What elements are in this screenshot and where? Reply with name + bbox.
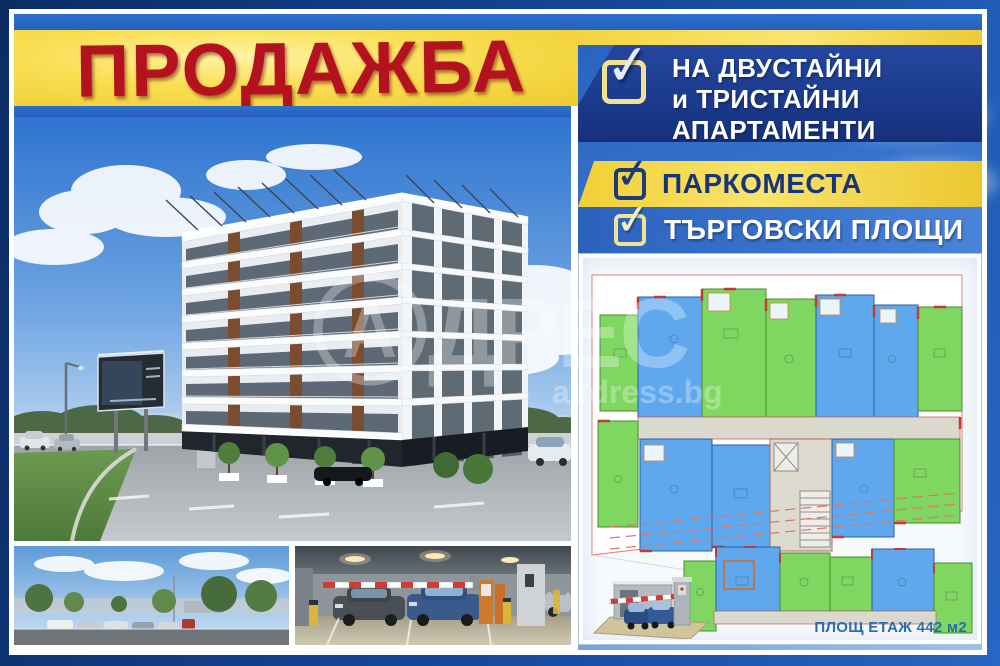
floor-plan-drawing	[584, 259, 976, 639]
check-icon: ✓	[613, 161, 653, 200]
payment-pillar	[479, 580, 505, 624]
checkbox-icon: ✓	[602, 60, 646, 104]
garage-photo	[295, 546, 571, 645]
sale-banner-underline-strip	[14, 106, 571, 117]
poster-canvas: ПРОДАЖБА	[9, 9, 987, 655]
sale-banner: ПРОДАЖБА	[14, 30, 578, 106]
sale-banner-title: ПРОДАЖБА	[14, 27, 579, 112]
feature-banner-commercial: ✓ ТЪРГОВСКИ ПЛОЩИ	[578, 207, 982, 253]
check-icon: ✓	[613, 207, 653, 246]
feature-commercial-label: ТЪРГОВСКИ ПЛОЩИ	[664, 214, 964, 246]
checkbox-icon: ✓	[614, 168, 646, 200]
check-icon: ✓	[602, 45, 655, 99]
floor-plan-panel: ПЛОЩ ЕТАЖ 442 м2	[578, 253, 982, 645]
building-photo-art	[14, 117, 571, 541]
checkbox-icon: ✓	[614, 214, 646, 246]
real-estate-poster: ПРОДАЖБА	[0, 0, 1000, 666]
street-photo-art	[14, 546, 289, 645]
feature-banner-parking: ✓ ПАРКОМЕСТА	[578, 161, 982, 207]
feature-banner-apartments: ✓ НА ДВУСТАЙНИ и ТРИСТАЙНИ АПАРТАМЕНТИ	[578, 45, 982, 142]
garage-photo-art	[295, 546, 571, 645]
street-photo	[14, 546, 289, 645]
floor-area-label: ПЛОЩ ЕТАЖ 442 м2	[814, 619, 967, 636]
feature-parking-label: ПАРКОМЕСТА	[662, 168, 862, 200]
feature-apartments-text: НА ДВУСТАЙНИ и ТРИСТАЙНИ АПАРТАМЕНТИ	[672, 53, 883, 142]
building-photo	[14, 117, 571, 541]
feature-banner-top-edge	[578, 30, 982, 45]
